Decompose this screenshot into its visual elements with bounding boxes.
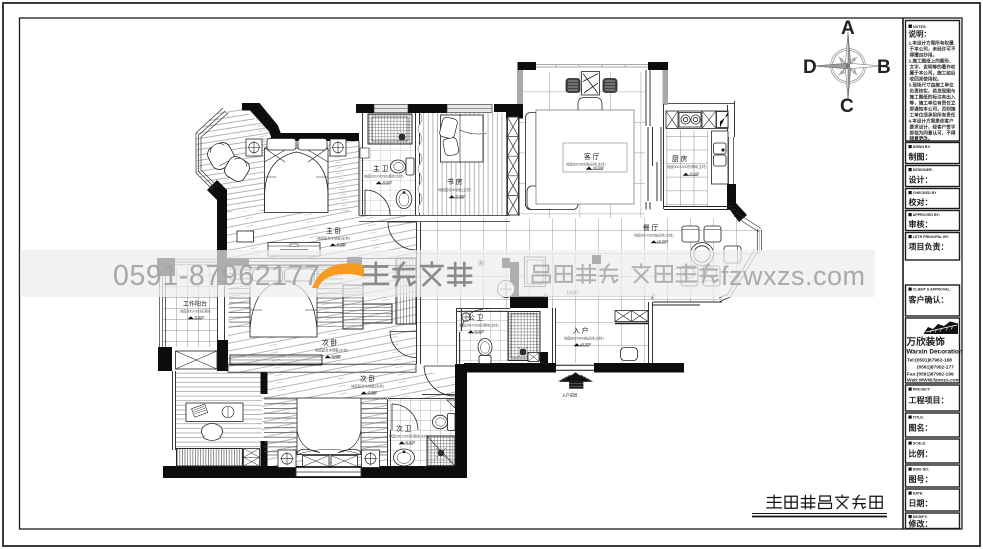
svg-text:Web:WWW.fzwxzs.com: Web:WWW.fzwxzs.com [907,378,960,384]
svg-text:入户花园: 入户花园 [562,393,577,398]
svg-text:1.本设计方案所有权属: 1.本设计方案所有权属 [909,40,955,47]
svg-text:图号：: 图号： [909,475,933,484]
svg-text:DWG NO:: DWG NO: [913,468,929,472]
svg-text:DESIGNER:: DESIGNER: [913,168,933,172]
svg-text:CHECKED BY: CHECKED BY [913,191,937,195]
svg-text:LETR PRINCIPAL BY:: LETR PRINCIPAL BY: [913,235,949,239]
svg-text:-0.020: -0.020 [405,441,415,445]
svg-text:要求设计，经客户签字: 要求设计，经客户签字 [910,124,956,131]
svg-text:fzwxzs.com: fzwxzs.com [721,261,866,291]
svg-text:得擅自抄用。: 得擅自抄用。 [909,52,938,59]
svg-text:0591-87962177: 0591-87962177 [113,260,321,292]
svg-text:-0.020: -0.020 [382,181,392,185]
svg-text:次 卧: 次 卧 [322,338,338,347]
svg-text:±0.000: ±0.000 [657,240,668,244]
svg-text:万欣装饰: 万欣装饰 [906,336,946,348]
svg-text:属于本公司，施工结后: 属于本公司，施工结后 [910,70,956,77]
svg-text:负责核实，若发现图与: 负责核实，若发现图与 [910,88,956,95]
svg-text:®: ® [478,259,484,268]
svg-text:APPROVED BY:: APPROVED BY: [913,213,940,217]
svg-text:C: C [840,96,854,117]
svg-text:-0.020: -0.020 [689,172,699,176]
svg-text:4.本设计方案是依客户: 4.本设计方案是依客户 [909,118,954,125]
svg-text:客 厅: 客 厅 [584,152,600,161]
svg-text:B: B [877,57,891,78]
svg-text:地面复合木地板(主材): 地面复合木地板(主材) [351,384,384,389]
svg-text:项目负责：: 项目负责： [909,242,949,252]
svg-text:D: D [803,57,817,78]
svg-text:修改：: 修改： [908,519,933,529]
svg-text:审核：: 审核： [909,219,933,229]
svg-text:地面800X800抛光砖(主材): 地面800X800抛光砖(主材) [634,233,674,238]
svg-text:±0.000: ±0.000 [580,343,591,347]
svg-text:即通知本公司，否则施: 即通知本公司，否则施 [910,106,956,113]
svg-text:日期：: 日期： [909,498,933,508]
svg-text:等，施工单位有责任立: 等，施工单位有责任立 [910,100,956,107]
svg-text:-0.080: -0.080 [455,195,465,199]
svg-text:施工图纸的标注有出入: 施工图纸的标注有出入 [909,94,956,101]
svg-text:说明：: 说明： [909,29,932,39]
svg-text:地面复合木地板(主材): 地面复合木地板(主材) [315,348,348,353]
svg-text:TITLE:: TITLE: [913,416,924,420]
svg-text:DRWN BY:: DRWN BY: [913,145,931,149]
svg-text:地面复合木地板(主材): 地面复合木地板(主材) [438,187,471,192]
svg-text:设计：: 设计： [909,175,933,185]
svg-text:收回其使用权。: 收回其使用权。 [910,76,942,83]
svg-text:地面复合木地板(主材): 地面复合木地板(主材) [317,236,350,241]
svg-text:Fax:(0591)87962-199: Fax:(0591)87962-199 [907,372,954,378]
svg-text:3.现场尺寸由施工单位: 3.现场尺寸由施工单位 [909,82,955,89]
svg-text:NOTES:: NOTES: [913,25,927,29]
svg-text:地面300X300防滑砖: 地面300X300防滑砖 [180,309,211,314]
svg-text:工程项目：: 工程项目： [909,395,949,405]
svg-text:客户确认：: 客户确认： [908,295,949,305]
svg-text:(0591)87952-177: (0591)87952-177 [917,365,954,371]
svg-text:地面300X300防滑砖(主材): 地面300X300防滑砖(主材) [459,323,499,328]
svg-text:次 卧: 次 卧 [360,374,376,383]
svg-text:±0.000: ±0.000 [593,166,604,170]
svg-text:Warxin Decoration: Warxin Decoration [907,349,963,356]
svg-text:厨 房: 厨 房 [672,154,688,163]
svg-text:图名：: 图名： [909,423,933,433]
svg-text:A: A [841,18,855,39]
svg-text:随意更改。: 随意更改。 [910,135,933,142]
svg-text:地面300X300防滑砖(主材): 地面300X300防滑砖(主材) [667,164,707,169]
svg-text:餐 厅: 餐 厅 [643,223,659,232]
svg-text:于本公司，未经许可不: 于本公司，未经许可不 [910,46,956,53]
svg-text:-0.080: -0.080 [331,355,341,359]
svg-text:文字、说明等的著作权: 文字、说明等的著作权 [910,64,956,71]
svg-text:Tel:(0591)87962-168: Tel:(0591)87962-168 [907,358,952,364]
svg-text:地面300X300防滑砖(主材): 地面300X300防滑砖(主材) [389,434,429,439]
svg-text:2.施工图纸上的图形、: 2.施工图纸上的图形、 [909,58,954,65]
svg-text:工单位须承担所有责任: 工单位须承担所有责任 [910,112,956,119]
svg-text:-0.080: -0.080 [367,391,377,395]
svg-text:入 户: 入 户 [573,326,588,335]
svg-text:比例：: 比例： [909,449,933,459]
svg-text:工作阳台: 工作阳台 [183,300,207,308]
svg-text:主 卫: 主 卫 [373,164,389,173]
svg-text:SCALE:: SCALE: [913,442,926,446]
svg-text:-0.020: -0.020 [194,316,204,320]
svg-text:PROJECT:: PROJECT: [913,388,931,392]
svg-text:书 房: 书 房 [447,177,463,186]
svg-text:CLIENT S APPROVAL:: CLIENT S APPROVAL: [913,288,951,292]
svg-text:次 卫: 次 卫 [396,424,412,433]
svg-text:-0.080: -0.080 [336,243,346,247]
svg-text:校对：: 校对： [909,197,933,207]
svg-text:地面300X300防滑砖(主材): 地面300X300防滑砖(主材) [364,174,404,179]
svg-text:地面800X800抛光砖(主材): 地面800X800抛光砖(主材) [564,336,604,341]
svg-text:-0.020: -0.020 [474,330,484,334]
svg-text:DATE:: DATE: [913,492,924,496]
svg-text:主 卧: 主 卧 [326,226,342,235]
svg-text:制图：: 制图： [909,152,933,162]
svg-text:公 卫: 公 卫 [468,314,484,322]
